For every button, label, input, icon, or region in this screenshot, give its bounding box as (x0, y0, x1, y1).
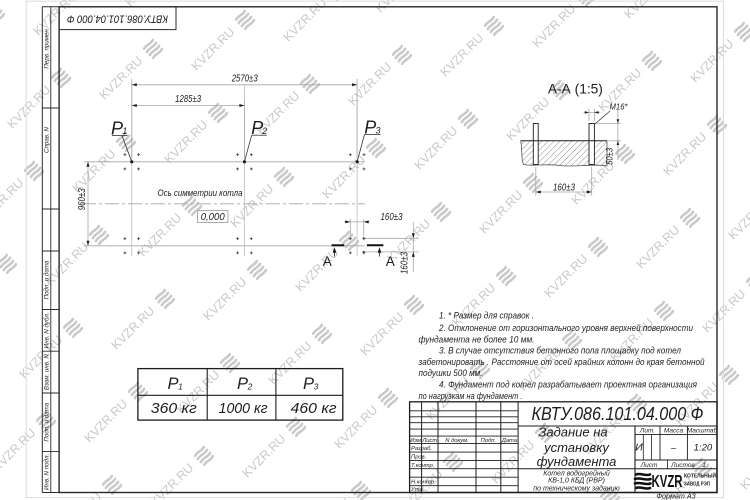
svg-text:по техническому заданию: по техническому заданию (533, 485, 620, 493)
svg-text:1285±3: 1285±3 (175, 94, 201, 105)
svg-text:160±3: 160±3 (381, 212, 403, 223)
svg-text:Изм: Изм (410, 438, 421, 444)
svg-text:А: А (386, 254, 395, 269)
svg-text:ЗАВОД РЭП: ЗАВОД РЭП (684, 482, 710, 488)
svg-text:Взам. инв. N: Взам. инв. N (43, 354, 50, 391)
svg-text:1:20: 1:20 (694, 443, 713, 454)
svg-text:P: P (237, 375, 248, 393)
svg-text:160±3: 160±3 (400, 252, 411, 274)
svg-text:1: 1 (702, 462, 706, 469)
svg-text:1: 1 (122, 126, 127, 136)
svg-text:Котел водогрейный: Котел водогрейный (543, 470, 610, 478)
svg-text:Формат А3: Формат А3 (656, 492, 695, 500)
svg-text:Перв. примен.: Перв. примен. (43, 27, 50, 68)
svg-text:Утв.: Утв. (410, 487, 424, 493)
svg-text:КОТЕЛЬНЫЙ: КОТЕЛЬНЫЙ (684, 472, 716, 480)
svg-text:КВ-1,0 КБД (РВР): КВ-1,0 КБД (РВР) (548, 478, 605, 485)
svg-text:Инв. N дубл.: Инв. N дубл. (43, 312, 50, 348)
svg-text:по нагрузкам на фундамент .: по нагрузкам на фундамент . (419, 391, 523, 401)
svg-text:2: 2 (261, 126, 267, 136)
svg-text:460 кг: 460 кг (291, 400, 338, 417)
svg-text:Инв. N подл.: Инв. N подл. (43, 454, 50, 490)
svg-text:фундамента: фундамента (537, 454, 617, 469)
svg-text:3. В случае отсутствия бетонн: 3. В случае отсутствия бетонного пола пл… (439, 346, 681, 356)
svg-text:Подп. и дата: Подп. и дата (43, 260, 50, 299)
svg-text:P: P (111, 118, 123, 138)
svg-text:1. * Размер для справок .: 1. * Размер для справок . (439, 311, 534, 321)
svg-text:фундамента не более 10 мм.: фундамента не более 10 мм. (419, 335, 535, 345)
svg-text:P: P (167, 375, 178, 393)
svg-text:Масса: Масса (664, 428, 684, 435)
svg-text:P: P (364, 118, 376, 138)
svg-text:50±3: 50±3 (604, 148, 614, 165)
svg-text:0,000: 0,000 (201, 211, 225, 223)
svg-text:3: 3 (375, 125, 380, 135)
svg-text:подушки 500 мм.: подушки 500 мм. (419, 368, 483, 378)
svg-text:1000 кг: 1000 кг (219, 400, 269, 417)
svg-text:Подп.: Подп. (481, 438, 496, 444)
svg-text:Лит.: Лит. (639, 428, 655, 435)
svg-text:4. Фундамент под котел разраб: 4. Фундамент под котел разрабатывает про… (439, 380, 697, 390)
svg-text:Разраб.: Разраб. (411, 446, 432, 452)
svg-text:2570±3: 2570±3 (231, 74, 258, 85)
svg-text:Т.контр.: Т.контр. (411, 463, 434, 469)
svg-text:960±3: 960±3 (77, 188, 88, 210)
svg-text:Н.контр.: Н.контр. (411, 480, 436, 486)
svg-text:KVZR: KVZR (652, 471, 683, 491)
svg-text:N докум.: N докум. (445, 438, 468, 444)
svg-text:–: – (670, 442, 677, 452)
svg-text:2: 2 (247, 381, 253, 391)
svg-text:Пров.: Пров. (411, 455, 426, 461)
svg-text:Листов: Листов (670, 462, 695, 469)
svg-text:М16*: М16* (610, 101, 629, 111)
svg-text:А: А (323, 254, 332, 269)
svg-text:А-А (1:5): А-А (1:5) (548, 80, 603, 96)
svg-text:P: P (303, 375, 314, 393)
svg-text:Ось симметрии котла: Ось симметрии котла (158, 188, 243, 199)
svg-text:Задание на: Задание на (538, 425, 607, 440)
svg-text:Лист: Лист (640, 462, 658, 469)
svg-text:И: И (635, 442, 643, 454)
svg-text:1: 1 (178, 381, 183, 391)
svg-text:2. Отклонение от горизонтальн: 2. Отклонение от горизонтального уровня … (438, 323, 693, 333)
svg-text:360 кг: 360 кг (151, 400, 198, 417)
svg-text:забетонировать . Расстояние от: забетонировать . Расстояние от осей край… (418, 357, 705, 367)
svg-text:Лист: Лист (421, 438, 437, 444)
svg-text:Справ. N: Справ. N (43, 127, 50, 153)
svg-text:Подп. и дата: Подп. и дата (43, 402, 50, 441)
svg-text:установку: установку (543, 440, 610, 455)
svg-text:КВТУ.086.101.04.000 Ф: КВТУ.086.101.04.000 Ф (67, 12, 168, 24)
svg-text:КВТУ.086.101.04.000 Ф: КВТУ.086.101.04.000 Ф (532, 403, 704, 424)
svg-text:160±3: 160±3 (553, 182, 575, 193)
svg-text:3: 3 (314, 381, 319, 391)
svg-text:Масштаб: Масштаб (687, 427, 718, 435)
svg-text:Дата: Дата (501, 438, 518, 444)
